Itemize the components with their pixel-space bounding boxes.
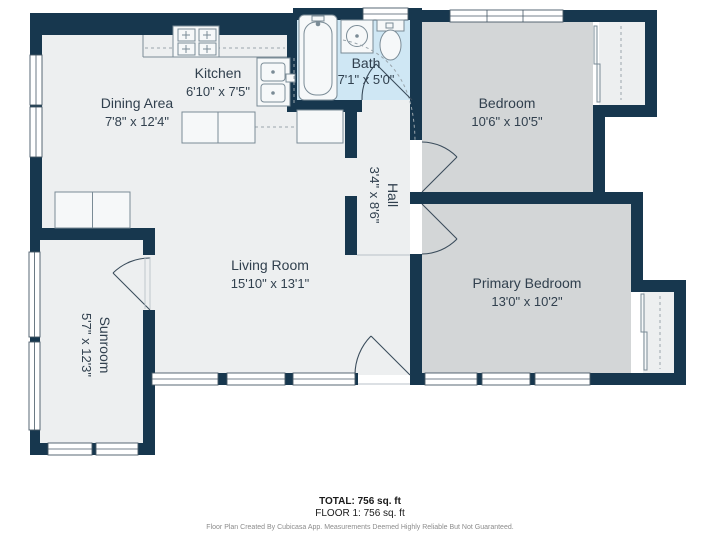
wall-segment	[345, 100, 357, 158]
window	[30, 55, 42, 105]
living-room-floor-right	[287, 112, 345, 375]
window	[425, 373, 477, 385]
room-name: Sunroom	[97, 317, 113, 374]
wall-segment	[410, 8, 422, 140]
room-name: Hall	[385, 183, 401, 207]
room-name: Bath	[352, 55, 381, 71]
hall-cabinet	[297, 110, 343, 143]
footer: TOTAL: 756 sq. ft FLOOR 1: 756 sq. ft Fl…	[206, 496, 513, 531]
wall-segment	[410, 254, 422, 373]
primary-closet-floor	[643, 292, 674, 373]
floor-plan: Dining Area 7'8" x 12'4" Kitchen 6'10" x…	[0, 0, 720, 540]
stove-icon	[173, 26, 219, 57]
room-name: Primary Bedroom	[473, 275, 582, 291]
floor-plan-page: Dining Area 7'8" x 12'4" Kitchen 6'10" x…	[0, 0, 720, 540]
wall-segment	[645, 10, 657, 117]
room-dims: 3'4" x 8'6"	[367, 167, 382, 224]
kitchen-cabinet	[182, 112, 255, 143]
window	[293, 373, 355, 385]
wall-segment	[143, 228, 155, 255]
wall-segment	[30, 228, 155, 240]
room-dims: 15'10" x 13'1"	[231, 276, 310, 291]
wall-segment	[631, 192, 643, 292]
hall-floor	[357, 100, 410, 375]
wall-segment	[143, 310, 155, 375]
window	[152, 373, 218, 385]
window	[48, 443, 92, 455]
window	[30, 107, 42, 157]
window	[29, 252, 40, 337]
window	[363, 8, 408, 20]
room-name: Kitchen	[195, 65, 242, 81]
washer-dryer-icon	[55, 192, 130, 228]
wall-segment	[593, 105, 605, 204]
window	[535, 373, 590, 385]
room-name: Living Room	[231, 257, 309, 273]
bedroom-closet-floor	[599, 22, 645, 105]
wall-segment	[674, 280, 686, 385]
room-dims: 7'8" x 12'4"	[105, 114, 169, 129]
room-dims: 6'10" x 7'5"	[186, 84, 250, 99]
total-area-text: TOTAL: 756 sq. ft	[319, 496, 402, 507]
room-dims: 7'1" x 5'0"	[338, 72, 395, 87]
disclaimer-text: Floor Plan Created By Cubicasa App. Meas…	[206, 524, 513, 531]
window	[482, 373, 530, 385]
floor-area-text: FLOOR 1: 756 sq. ft	[315, 508, 405, 519]
room-dims: 5'7" x 12'3"	[79, 313, 94, 377]
room-dims: 13'0" x 10'2"	[491, 294, 563, 309]
window	[227, 373, 285, 385]
wall-segment	[30, 13, 297, 35]
window	[96, 443, 138, 455]
room-name: Bedroom	[479, 95, 536, 111]
wall-segment	[410, 192, 643, 204]
wall-segment	[345, 196, 357, 255]
hall-opening-floor	[345, 158, 357, 196]
window	[450, 10, 563, 22]
bathtub-icon	[299, 15, 337, 100]
window	[29, 342, 40, 430]
room-dims: 10'6" x 10'5"	[471, 114, 543, 129]
room-name: Dining Area	[101, 95, 174, 111]
